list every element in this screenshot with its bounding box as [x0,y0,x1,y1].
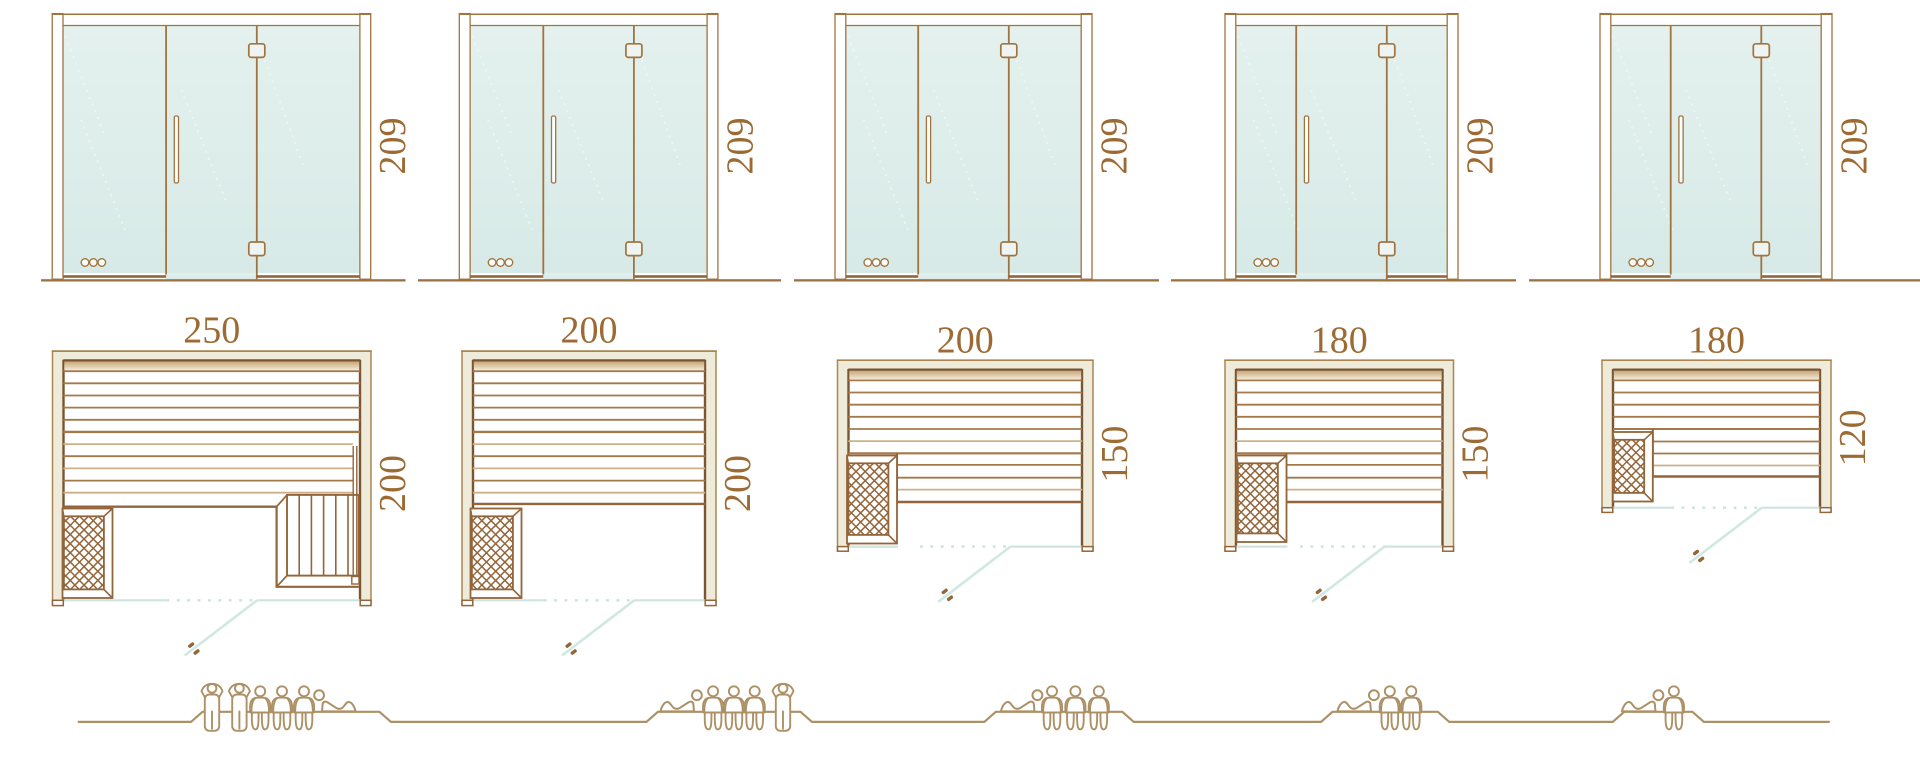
svg-text:200: 200 [717,455,759,512]
svg-text:209: 209 [719,118,761,175]
svg-text:209: 209 [1460,118,1502,175]
svg-text:200: 200 [937,320,994,362]
svg-text:150: 150 [1455,426,1497,483]
svg-text:150: 150 [1094,426,1136,483]
svg-text:209: 209 [1834,118,1876,175]
svg-text:120: 120 [1832,409,1874,466]
svg-text:209: 209 [372,118,414,175]
svg-text:209: 209 [1094,118,1136,175]
svg-text:180: 180 [1688,320,1745,362]
svg-text:180: 180 [1311,320,1368,362]
svg-text:200: 200 [372,455,414,512]
svg-text:200: 200 [561,310,618,352]
svg-text:250: 250 [183,310,240,352]
